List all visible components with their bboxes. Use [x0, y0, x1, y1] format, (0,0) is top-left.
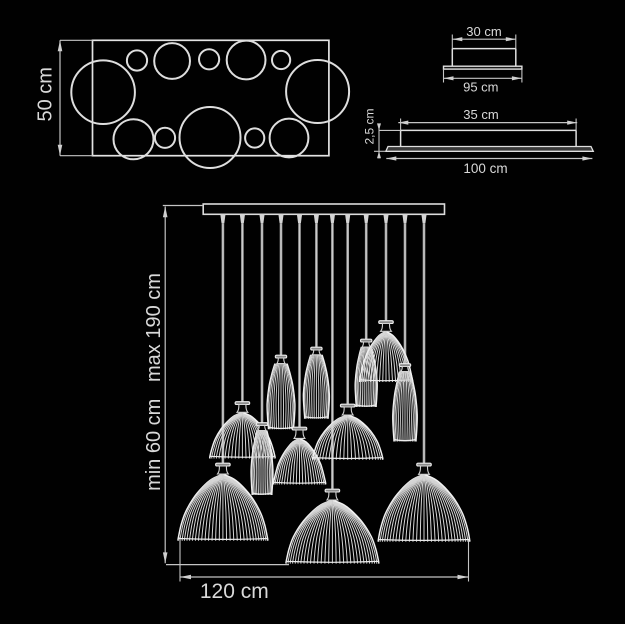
svg-text:min 60 cm max 190 cm: min 60 cm max 190 cm: [143, 273, 165, 491]
svg-text:95 cm: 95 cm: [463, 79, 498, 94]
svg-text:120 cm: 120 cm: [200, 580, 269, 603]
svg-text:30 cm: 30 cm: [466, 24, 501, 39]
svg-text:35 cm: 35 cm: [463, 107, 498, 122]
svg-text:100 cm: 100 cm: [463, 161, 507, 176]
svg-text:50 cm: 50 cm: [34, 67, 56, 121]
svg-text:2,5 cm: 2,5 cm: [363, 108, 377, 144]
